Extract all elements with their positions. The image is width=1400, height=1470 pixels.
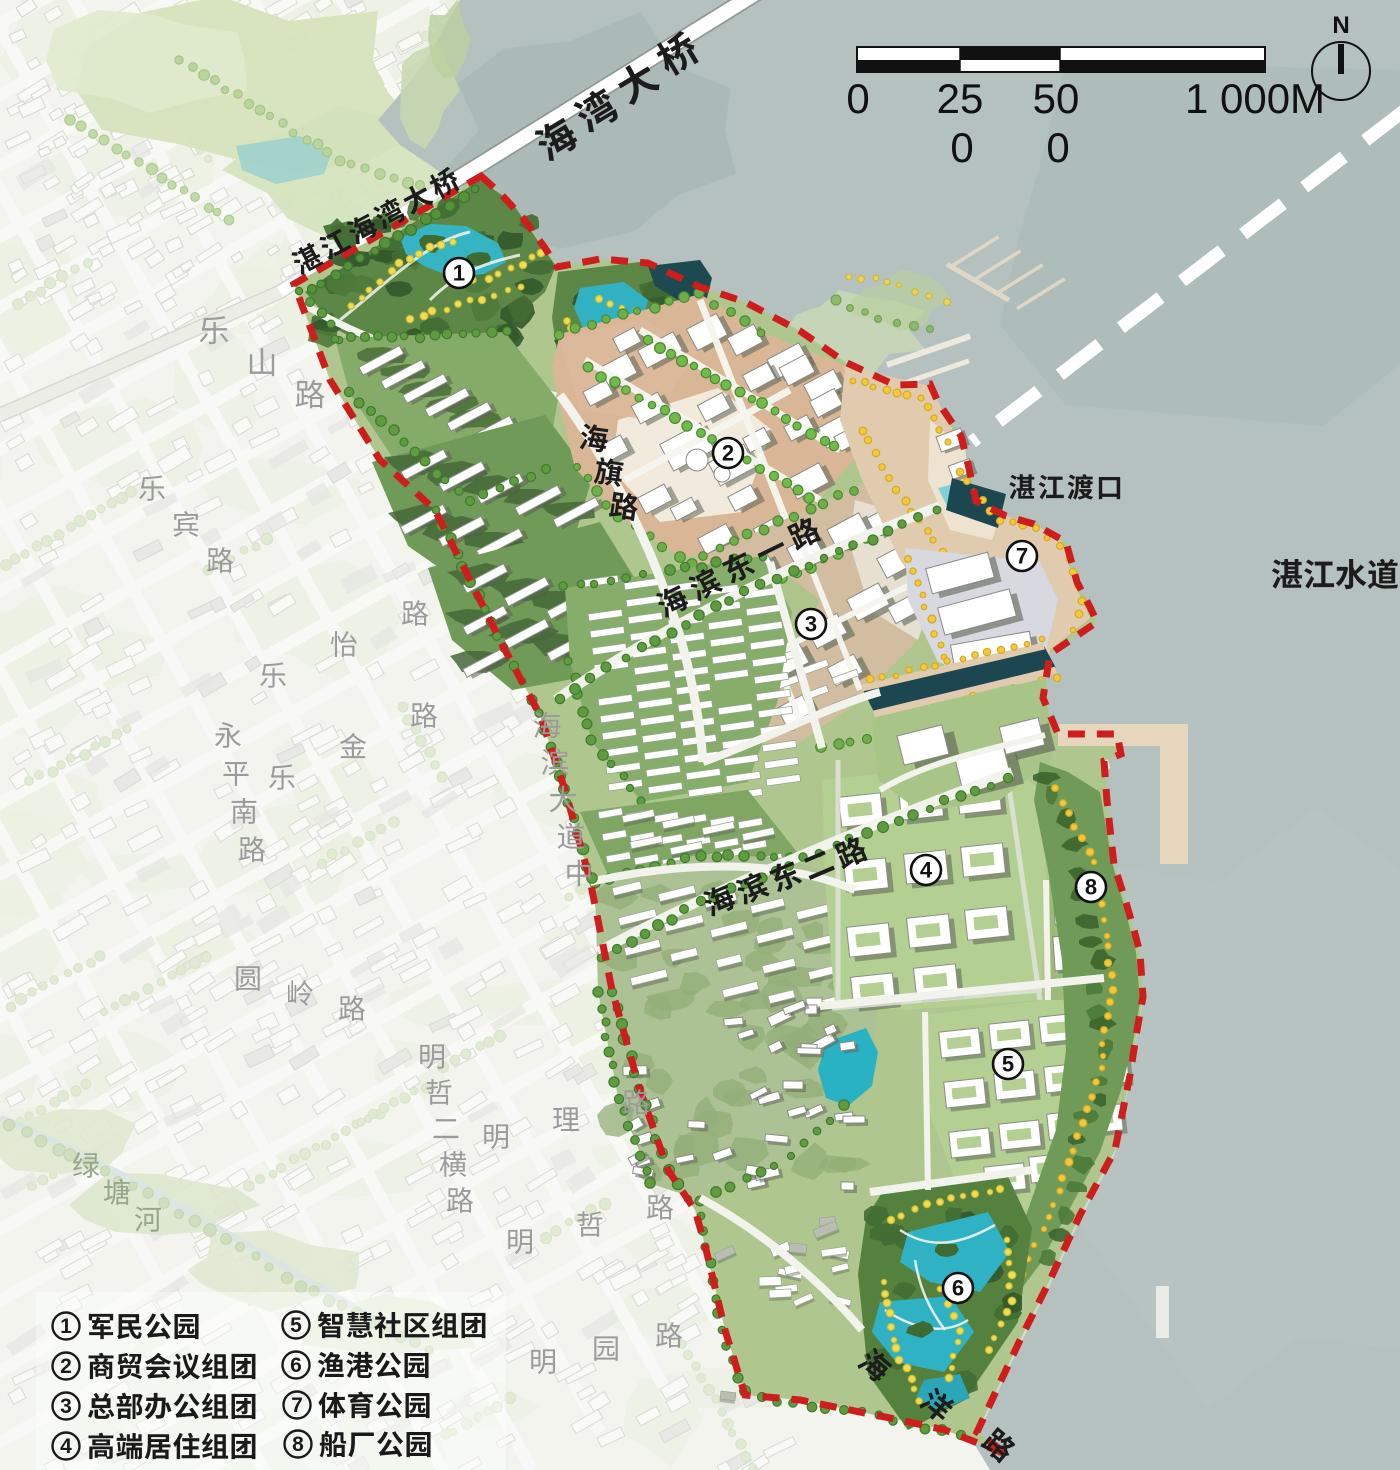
svg-text:50: 50 <box>1033 75 1080 122</box>
svg-text:5: 5 <box>1002 1052 1014 1077</box>
svg-text:1: 1 <box>453 261 465 286</box>
svg-text:2: 2 <box>60 1355 72 1378</box>
svg-text:3: 3 <box>805 612 817 637</box>
svg-text:8: 8 <box>1085 875 1097 900</box>
svg-text:6: 6 <box>952 1276 964 1301</box>
svg-text:N: N <box>1332 12 1349 39</box>
svg-text:5: 5 <box>290 1314 302 1337</box>
svg-text:0: 0 <box>846 75 869 122</box>
svg-text:4: 4 <box>60 1435 72 1458</box>
svg-text:6: 6 <box>290 1354 302 1377</box>
svg-text:8: 8 <box>292 1433 304 1456</box>
svg-text:1: 1 <box>60 1315 72 1338</box>
svg-text:4: 4 <box>920 858 933 883</box>
svg-text:0: 0 <box>950 124 973 171</box>
svg-text:7: 7 <box>1016 544 1028 569</box>
svg-text:3: 3 <box>60 1395 72 1418</box>
svg-text:1 000M: 1 000M <box>1185 75 1325 122</box>
svg-text:25: 25 <box>937 75 984 122</box>
svg-text:0: 0 <box>1046 124 1069 171</box>
svg-text:2: 2 <box>722 441 734 466</box>
svg-text:7: 7 <box>291 1394 303 1417</box>
